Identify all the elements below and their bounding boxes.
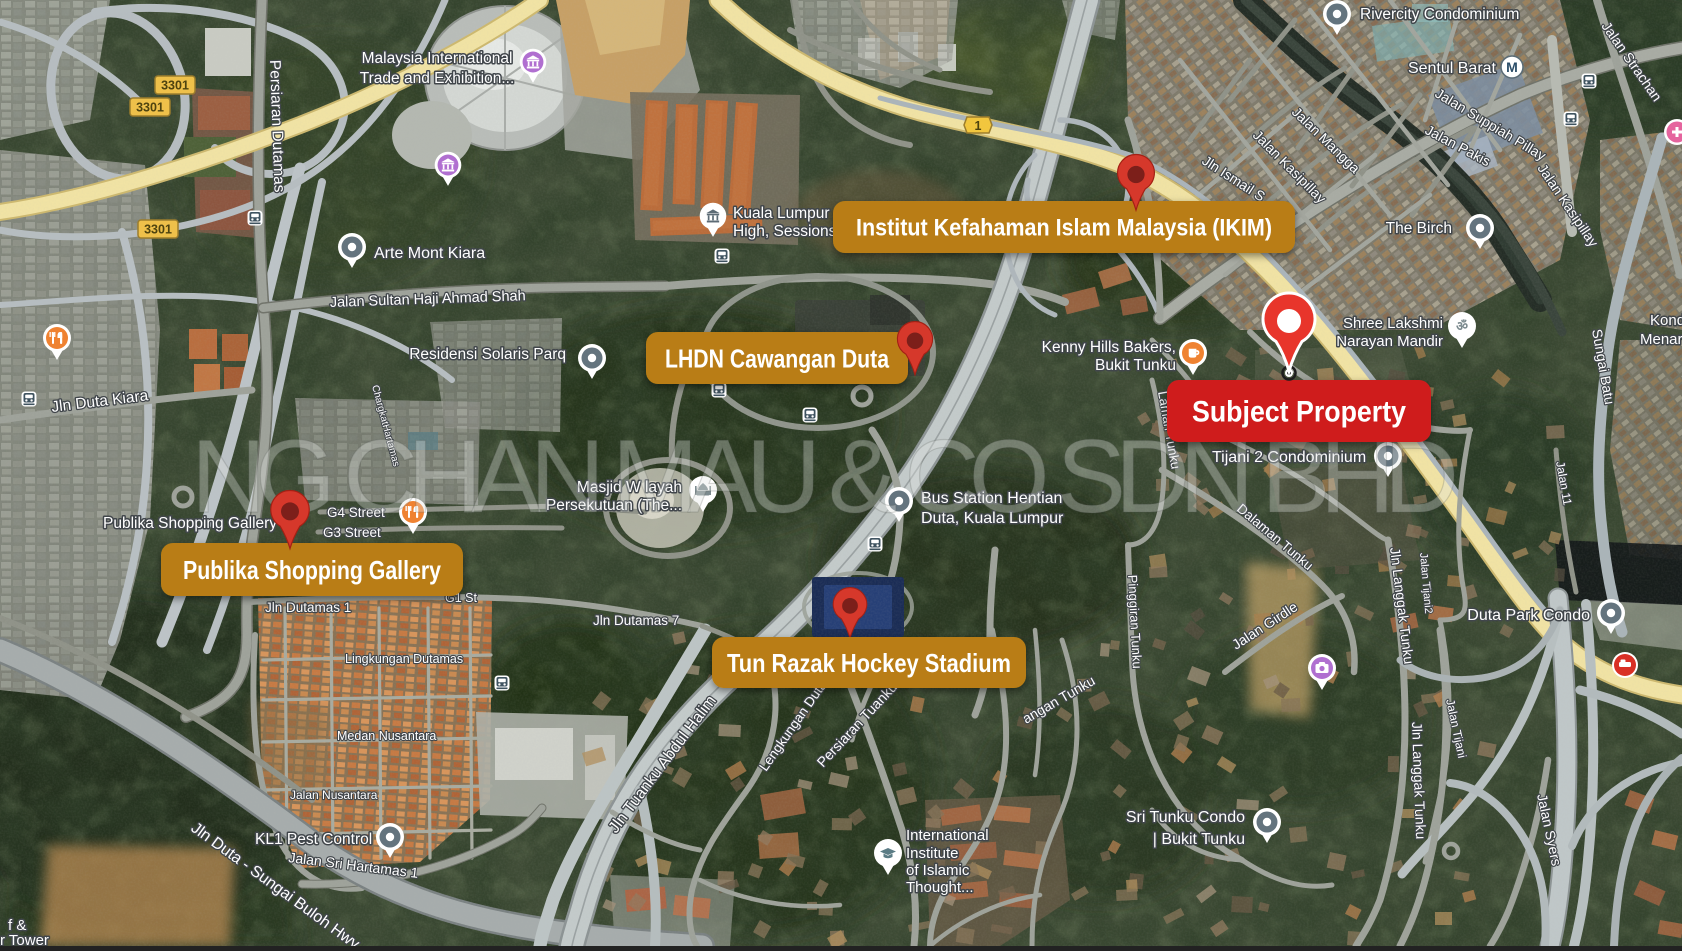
svg-text:Publika Shopping Gallery: Publika Shopping Gallery [183, 555, 441, 585]
svg-text:Institut Kefahaman Islam Malay: Institut Kefahaman Islam Malaysia (IKIM) [856, 215, 1272, 242]
svg-text:International: International [906, 827, 989, 844]
svg-text:Subject Property: Subject Property [1192, 396, 1407, 429]
svg-text:M: M [1506, 59, 1518, 75]
svg-text:ॐ: ॐ [1456, 319, 1468, 334]
svg-text:3301: 3301 [136, 101, 164, 115]
svg-text:of Islamic: of Islamic [906, 862, 970, 879]
svg-text:Lingkungan Dutamas: Lingkungan Dutamas [345, 652, 463, 666]
svg-text:Arte Mont Kiara: Arte Mont Kiara [374, 245, 485, 262]
svg-text:Shree Lakshmi: Shree Lakshmi [1343, 315, 1443, 332]
svg-text:Menar: Menar [1640, 331, 1682, 348]
svg-text:Bukit Tunku: Bukit Tunku [1095, 357, 1176, 374]
svg-text:Trade and Exhibition...: Trade and Exhibition... [360, 70, 515, 87]
svg-text:Kenny Hills Bakers,: Kenny Hills Bakers, [1042, 339, 1176, 356]
svg-text:r Tower: r Tower [0, 932, 49, 946]
svg-text:The Birch: The Birch [1386, 220, 1452, 237]
svg-text:KL1 Pest Control: KL1 Pest Control [255, 831, 372, 848]
svg-text:Thought...: Thought... [906, 879, 974, 896]
svg-text:Kond: Kond [1650, 312, 1682, 329]
svg-text:Jln Dutamas 1: Jln Dutamas 1 [265, 600, 351, 615]
svg-text:Sentul Barat: Sentul Barat [1408, 60, 1497, 77]
svg-text:1: 1 [975, 119, 982, 133]
svg-text:Duta Park Condo: Duta Park Condo [1467, 607, 1590, 624]
svg-text:Rivercity Condominium: Rivercity Condominium [1360, 6, 1519, 23]
svg-text:Malaysia International: Malaysia International [362, 50, 513, 67]
svg-text:Residensi Solaris Parq: Residensi Solaris Parq [409, 346, 566, 363]
svg-text:Tun Razak Hockey Stadium: Tun Razak Hockey Stadium [727, 648, 1011, 678]
svg-text:Medan Nusantara: Medan Nusantara [337, 729, 436, 743]
svg-text:Jln Dutamas 7: Jln Dutamas 7 [593, 613, 679, 628]
svg-text:LHDN Cawangan Duta: LHDN Cawangan Duta [665, 343, 889, 373]
svg-text:Kuala Lumpur: Kuala Lumpur [733, 205, 830, 222]
svg-text:Institute: Institute [906, 845, 959, 862]
svg-text:3301: 3301 [161, 79, 189, 93]
svg-text:High, Sessions: High, Sessions [733, 223, 837, 240]
svg-text:3301: 3301 [144, 223, 172, 237]
svg-text:| Bukit Tunku: | Bukit Tunku [1153, 831, 1245, 848]
svg-text:Jalan Nusantara: Jalan Nusantara [290, 788, 378, 802]
svg-text:Sri Tunku Condo: Sri Tunku Condo [1126, 809, 1245, 826]
svg-text:Narayan Mandir: Narayan Mandir [1336, 333, 1443, 350]
